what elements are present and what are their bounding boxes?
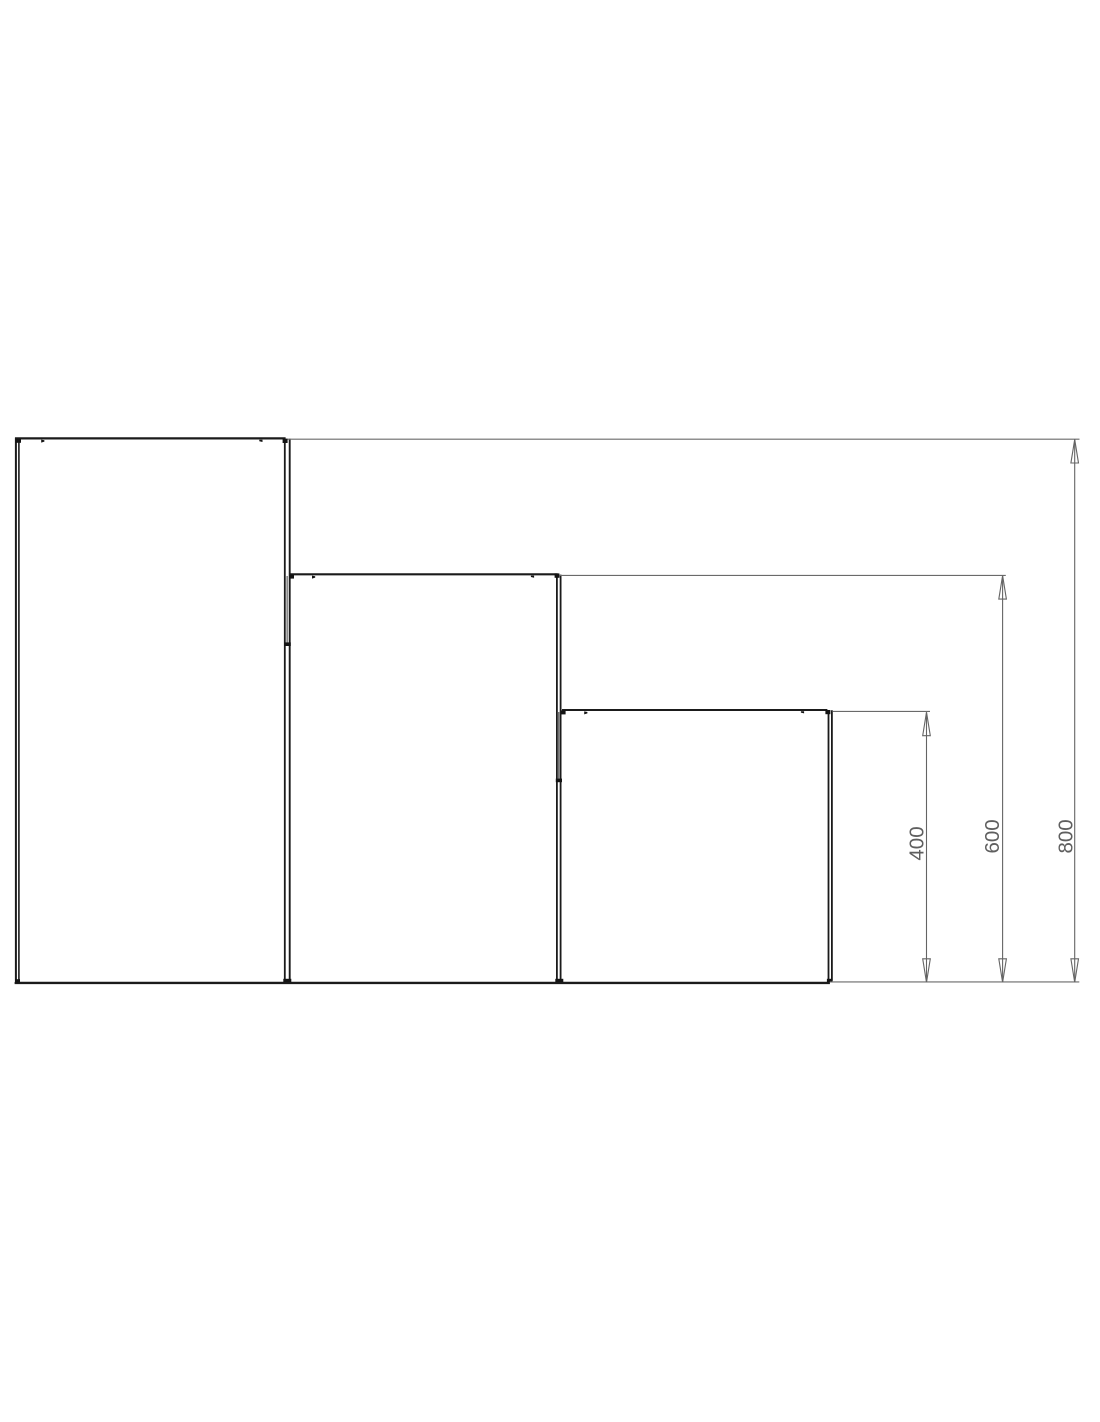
svg-text:600: 600 — [981, 819, 1004, 853]
svg-text:800: 800 — [1055, 819, 1078, 853]
svg-text:400: 400 — [906, 826, 929, 860]
